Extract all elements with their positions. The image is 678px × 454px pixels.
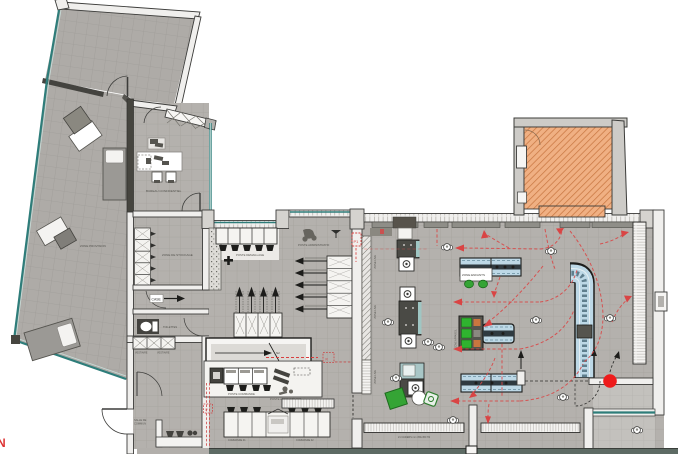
svg-text:ZONE PROVISION: ZONE PROVISION xyxy=(80,244,106,248)
svg-text:ZONE LIVE: ZONE LIVE xyxy=(373,305,377,319)
svg-text:ZONE APPAREIL: ZONE APPAREIL xyxy=(455,329,458,348)
svg-text:COMMUN: COMMUN xyxy=(134,422,146,426)
svg-text:POSTE ADMINISTRATIF: POSTE ADMINISTRATIF xyxy=(298,243,330,247)
svg-text:N2: N2 xyxy=(276,351,280,355)
svg-text:VESTIAIRE: VESTIAIRE xyxy=(157,352,170,355)
svg-text:VESTIAIRE: VESTIAIRE xyxy=(135,352,148,355)
svg-text:ZONE LIVE: ZONE LIVE xyxy=(373,370,377,384)
svg-text:ZONE DE STOCKAGE: ZONE DE STOCKAGE xyxy=(162,253,193,257)
svg-text:P: P xyxy=(206,408,208,412)
svg-text:P1: P1 xyxy=(354,239,360,244)
svg-text:POSTE DEMAILLAGE: POSTE DEMAILLAGE xyxy=(236,253,264,257)
svg-text:ZONE LIVE: ZONE LIVE xyxy=(373,255,377,269)
svg-text:TOILETTES: TOILETTES xyxy=(163,325,177,329)
svg-text:SALLE DE: SALLE DE xyxy=(134,418,147,422)
svg-text:POSTE COMMANDE: POSTE COMMANDE xyxy=(228,392,255,396)
svg-text:ZONE ENFANTS: ZONE ENFANTS xyxy=(462,273,485,277)
svg-text:BUREAU CONFIDENTIEL: BUREAU CONFIDENTIEL xyxy=(146,189,182,193)
svg-text:21 CASIERS mm 450x450 H2: 21 CASIERS mm 450x450 H2 xyxy=(398,436,431,439)
svg-text:COMMANDE 02: COMMANDE 02 xyxy=(296,439,314,442)
svg-text:COMMANDE 01: COMMANDE 01 xyxy=(228,439,246,442)
svg-text:CASE: CASE xyxy=(152,298,162,302)
svg-text:N: N xyxy=(0,436,6,450)
